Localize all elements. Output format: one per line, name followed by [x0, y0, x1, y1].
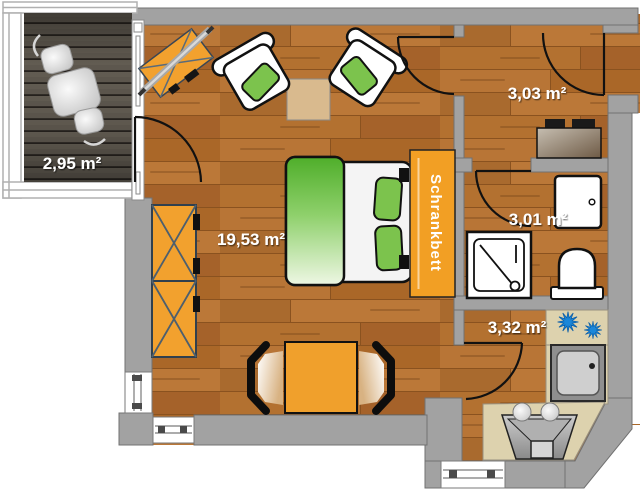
- kitchen-area-label: 3,32 m²: [488, 318, 547, 337]
- wall-corner-left: [119, 413, 153, 445]
- wall-step-block: [425, 398, 462, 461]
- wall-divider-stub: [454, 25, 464, 37]
- wall-top-right-step: [603, 25, 638, 33]
- balcony-area-label: 2,95 m²: [43, 154, 102, 173]
- floorplan-page: 2,95 m²: [0, 0, 640, 494]
- pillow: [375, 225, 403, 270]
- balcony-window-strip: [132, 20, 144, 200]
- wall-bed-cabinet: Schrankbett: [410, 150, 455, 297]
- sink-icon: [551, 345, 605, 401]
- wall-right: [608, 113, 632, 405]
- dining-chair: [359, 351, 384, 405]
- bathroom-area-label: 3,01 m²: [509, 210, 568, 229]
- wall-top: [127, 8, 638, 25]
- living-room-area-label: 19,53 m²: [217, 230, 285, 249]
- wardrobe: [152, 205, 200, 357]
- shower-icon: [467, 232, 531, 298]
- window-bottom-left: [153, 417, 194, 443]
- dining-table: [285, 342, 357, 413]
- pillow: [374, 177, 403, 221]
- side-table: [287, 79, 330, 120]
- dining-chair: [258, 351, 283, 405]
- hallway-area-label: 3,03 m²: [508, 84, 567, 103]
- wall-bed-label: Schrankbett: [427, 174, 444, 272]
- wall-entry-step: [608, 95, 638, 113]
- window-left: [125, 372, 152, 413]
- wall-bottom-main: [194, 415, 427, 445]
- floorplan-drawing: 2,95 m²: [0, 0, 640, 494]
- window-kitchen: [441, 461, 505, 488]
- wall-left: [125, 198, 152, 372]
- wall-hall-bath-right: [531, 158, 608, 172]
- wall-hall-bath-left: [454, 158, 472, 172]
- wall-bed: Schrankbett: [286, 150, 455, 297]
